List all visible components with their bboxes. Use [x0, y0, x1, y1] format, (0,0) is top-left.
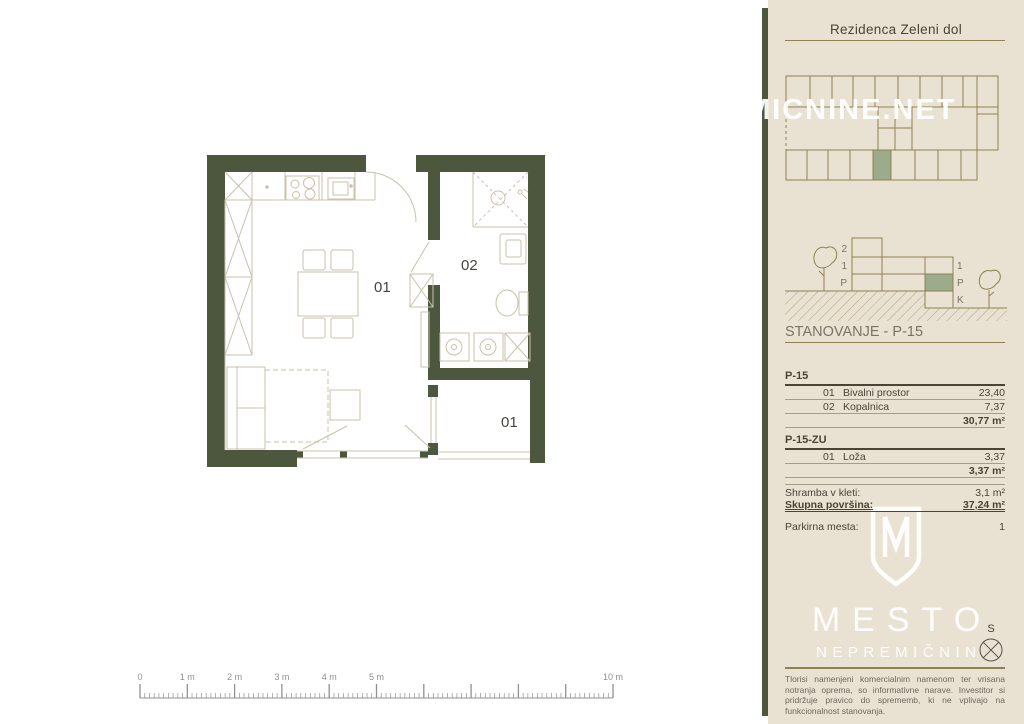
- tree-icon: [814, 247, 837, 268]
- parking-label: Parkirna mesta:: [785, 521, 859, 533]
- table-row: 02 Kopalnica 7,37: [785, 400, 1005, 414]
- total-area-value: 37,24 m²: [963, 499, 1005, 511]
- table-header-p15: P-15: [785, 368, 1005, 386]
- area-tables: P-15 01 Bivalni prostor 23,40 02 Kopalni…: [785, 368, 1005, 485]
- room-area: 7,37: [985, 401, 1005, 413]
- svg-text:2 m: 2 m: [227, 672, 242, 682]
- apartment-title: STANOVANJE - P-15: [785, 324, 923, 340]
- title-underline: [785, 40, 1005, 41]
- storage-label: Shramba v kleti:: [785, 487, 860, 499]
- floor-label-left-1: 1: [841, 261, 847, 272]
- table-row: 01 Loža 3,37: [785, 450, 1005, 464]
- parking-row: Parkirna mesta: 1: [785, 520, 1005, 533]
- floor-label-left-2: 2: [841, 244, 847, 255]
- room-number: 01: [823, 387, 843, 399]
- total-area-row: Skupna površina: 37,24 m²: [785, 499, 1005, 512]
- room-number: 01: [823, 451, 843, 463]
- floor-label-right-k: K: [957, 295, 964, 306]
- svg-text:3 m: 3 m: [274, 672, 289, 682]
- compass-icon: S: [976, 620, 1006, 666]
- table-bottom-line: [785, 484, 1005, 485]
- floor-label-left-p: P: [840, 278, 847, 289]
- table-header-p15zu: P-15-ZU: [785, 432, 1005, 450]
- svg-text:5 m: 5 m: [369, 672, 384, 682]
- footer-divider: [785, 667, 1005, 669]
- storage-row: Shramba v kleti: 3,1 m²: [785, 486, 1005, 499]
- svg-text:10 m: 10 m: [603, 672, 623, 682]
- compass-north-label: S: [987, 623, 994, 635]
- brochure-page: 01 02 01 01 m2 m3 m4 m5 m10 m Rezidenca …: [0, 0, 1024, 724]
- svg-text:0: 0: [137, 672, 142, 682]
- room-area: 3,37: [985, 451, 1005, 463]
- unit-highlight: [873, 150, 891, 180]
- project-title: Rezidenca Zeleni dol: [768, 22, 1024, 37]
- disclaimer-text: Tlorisi namenjeni komercialnim namenom t…: [785, 674, 1005, 716]
- storage-value: 3,1 m²: [975, 487, 1005, 499]
- unit-level-highlight: [925, 274, 953, 291]
- building-site-plan: [785, 75, 1000, 181]
- room-name: Kopalnica: [843, 401, 985, 413]
- tree-icon: [979, 270, 1000, 289]
- parking-value: 1: [999, 521, 1005, 533]
- room-name: Bivalni prostor: [843, 387, 979, 399]
- total-area-label: Skupna površina:: [785, 499, 873, 511]
- floor-label-right-p: P: [957, 278, 964, 289]
- svg-text:4 m: 4 m: [322, 672, 337, 682]
- ground-hatch: [785, 291, 1007, 321]
- room-area: 23,40: [979, 387, 1005, 399]
- summary: Shramba v kleti: 3,1 m² Skupna površina:…: [785, 486, 1005, 533]
- scale-ruler: 01 m2 m3 m4 m5 m10 m: [0, 0, 762, 724]
- floor-label-right-1: 1: [957, 261, 963, 272]
- building-elevation: 2 1 P 1 P K: [785, 235, 1007, 325]
- room-name: Loža: [843, 451, 985, 463]
- table-total-p15zu: 3,37 m²: [785, 464, 1005, 478]
- portal-watermark: MICNINE.NET: [746, 94, 957, 127]
- svg-text:1 m: 1 m: [180, 672, 195, 682]
- sidebar: Rezidenca Zeleni dol: [768, 0, 1024, 724]
- room-number: 02: [823, 401, 843, 413]
- table-total-p15: 30,77 m²: [785, 414, 1005, 428]
- table-row: 01 Bivalni prostor 23,40: [785, 386, 1005, 400]
- section-underline: [785, 342, 1005, 343]
